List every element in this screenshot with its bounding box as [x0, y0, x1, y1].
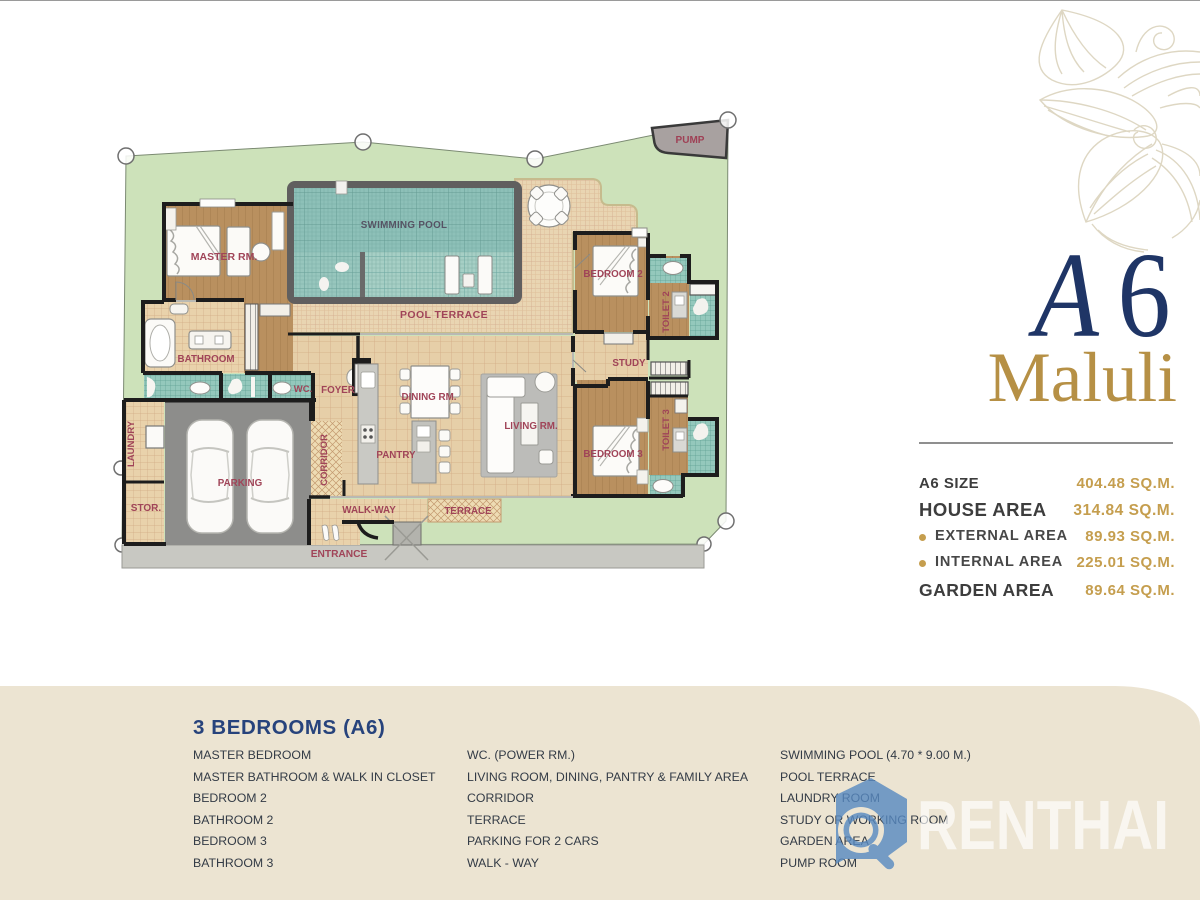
svg-text:WALK-WAY: WALK-WAY	[342, 505, 396, 516]
svg-text:CORRIDOR: CORRIDOR	[319, 434, 330, 486]
svg-text:BATHROOM: BATHROOM	[178, 354, 235, 365]
svg-text:POOL TERRACE: POOL TERRACE	[400, 309, 488, 321]
svg-text:TERRACE: TERRACE	[444, 506, 492, 517]
svg-text:BEDROOM 2: BEDROOM 2	[583, 269, 643, 280]
svg-text:MASTER RM.: MASTER RM.	[191, 251, 258, 263]
svg-text:LIVING RM.: LIVING RM.	[504, 421, 558, 432]
svg-text:SWIMMING POOL: SWIMMING POOL	[361, 220, 448, 231]
svg-text:TOILET 3: TOILET 3	[661, 409, 672, 451]
svg-text:STOR.: STOR.	[131, 503, 162, 514]
svg-text:TOILET 2: TOILET 2	[661, 291, 672, 333]
svg-text:DINING RM.: DINING RM.	[402, 392, 457, 403]
svg-text:ENTRANCE: ENTRANCE	[311, 549, 368, 560]
svg-text:LAUNDRY: LAUNDRY	[126, 420, 137, 467]
svg-text:PARKING: PARKING	[218, 478, 263, 489]
svg-text:BEDROOM 3: BEDROOM 3	[583, 449, 643, 460]
svg-text:FOYER: FOYER	[321, 385, 355, 396]
svg-text:PUMP: PUMP	[676, 135, 705, 146]
svg-text:PANTRY: PANTRY	[376, 450, 416, 461]
svg-text:STUDY: STUDY	[612, 358, 646, 369]
svg-text:WC.: WC.	[294, 384, 312, 395]
